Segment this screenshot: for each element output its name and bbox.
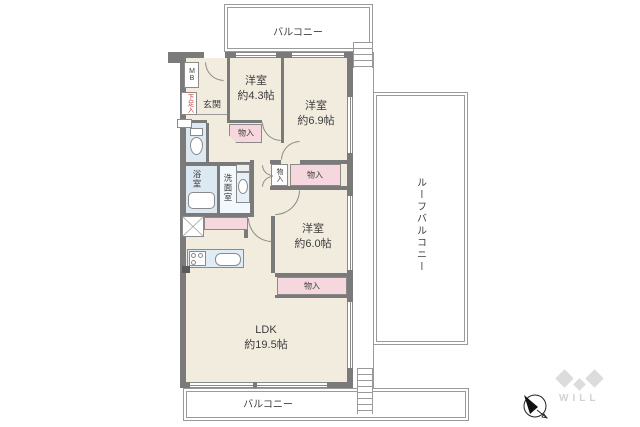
- ldk-label: LDK 約19.5帖: [244, 323, 287, 353]
- room1-name: 洋室: [237, 74, 274, 89]
- balcony-top-label: バルコニー: [273, 24, 323, 39]
- roof-balcony-label: ルーフバルコニー: [413, 177, 428, 273]
- kitchen-jamb: [182, 266, 190, 273]
- floor-plan: バルコニー バルコニー ルーフバルコニー 洋室 約4.3帖 洋室 約6.9帖 洋…: [0, 0, 640, 427]
- utility-box: [177, 119, 192, 128]
- bath-label: 浴室: [191, 170, 203, 189]
- room3-size: 約6.0帖: [294, 237, 331, 252]
- room2-label: 洋室 約6.9帖: [297, 99, 334, 129]
- closet-label: 物入: [274, 168, 284, 182]
- room2-name: 洋室: [297, 99, 334, 114]
- meter-box-label: MB: [189, 68, 196, 82]
- compass-icon: [508, 386, 558, 426]
- logo-text: WILL: [559, 393, 599, 404]
- shoe-cabinet-label: 下足入: [184, 93, 194, 113]
- window: [257, 382, 327, 388]
- room3-name: 洋室: [294, 222, 331, 237]
- closet-label: 物入: [238, 128, 254, 139]
- room1-label: 洋室 約4.3帖: [237, 74, 274, 104]
- ldk-size: 約19.5帖: [244, 338, 287, 353]
- entrance-label: 玄関: [203, 98, 221, 111]
- entrance-door-gap: [204, 52, 225, 58]
- ldk-name: LDK: [244, 323, 287, 338]
- kitchen-sink-icon: [215, 253, 241, 266]
- brand-logo: WILL: [552, 366, 614, 408]
- refrigerator-space: [182, 216, 204, 237]
- entrance-step-line: [197, 114, 227, 115]
- washing-machine-box: [236, 164, 250, 172]
- bathtub-icon: [188, 192, 215, 209]
- walkway-strip: [353, 52, 374, 388]
- toilet-tank-icon: [190, 128, 203, 136]
- partition-wall: [281, 58, 284, 143]
- room1-size: 約4.3帖: [237, 89, 274, 104]
- stove-burner-icon: [191, 253, 196, 258]
- stove-burner-icon: [198, 253, 203, 258]
- room3-label: 洋室 約6.0帖: [294, 222, 331, 252]
- balcony-bottom-label: バルコニー: [243, 396, 293, 411]
- stove-burner-icon: [191, 260, 196, 265]
- window: [347, 97, 353, 153]
- washroom-label: 洗面室: [222, 174, 234, 203]
- logo-diamond-icon: [555, 369, 573, 387]
- wash-basin-icon: [238, 179, 248, 194]
- window: [292, 52, 344, 58]
- logo-diamond-icon: [573, 378, 586, 391]
- partition-wall: [275, 295, 347, 298]
- window: [347, 302, 353, 368]
- window: [190, 382, 253, 388]
- kitchen-counter-back: [204, 217, 248, 230]
- closet-label: 物入: [307, 170, 323, 181]
- partition-wall: [227, 58, 230, 122]
- outer-wall-notch: [168, 52, 184, 63]
- partition-wall: [206, 123, 209, 162]
- window: [236, 52, 276, 58]
- room2-size: 約6.9帖: [297, 114, 334, 129]
- partition-wall: [250, 160, 254, 217]
- balcony-bottom: [183, 388, 469, 421]
- closet-label: 物入: [304, 281, 320, 292]
- balcony-steps-top: [353, 42, 373, 68]
- window: [347, 196, 353, 270]
- balcony-steps-bottom: [357, 368, 373, 414]
- partition-wall: [227, 120, 262, 123]
- logo-diamond-icon: [585, 369, 603, 387]
